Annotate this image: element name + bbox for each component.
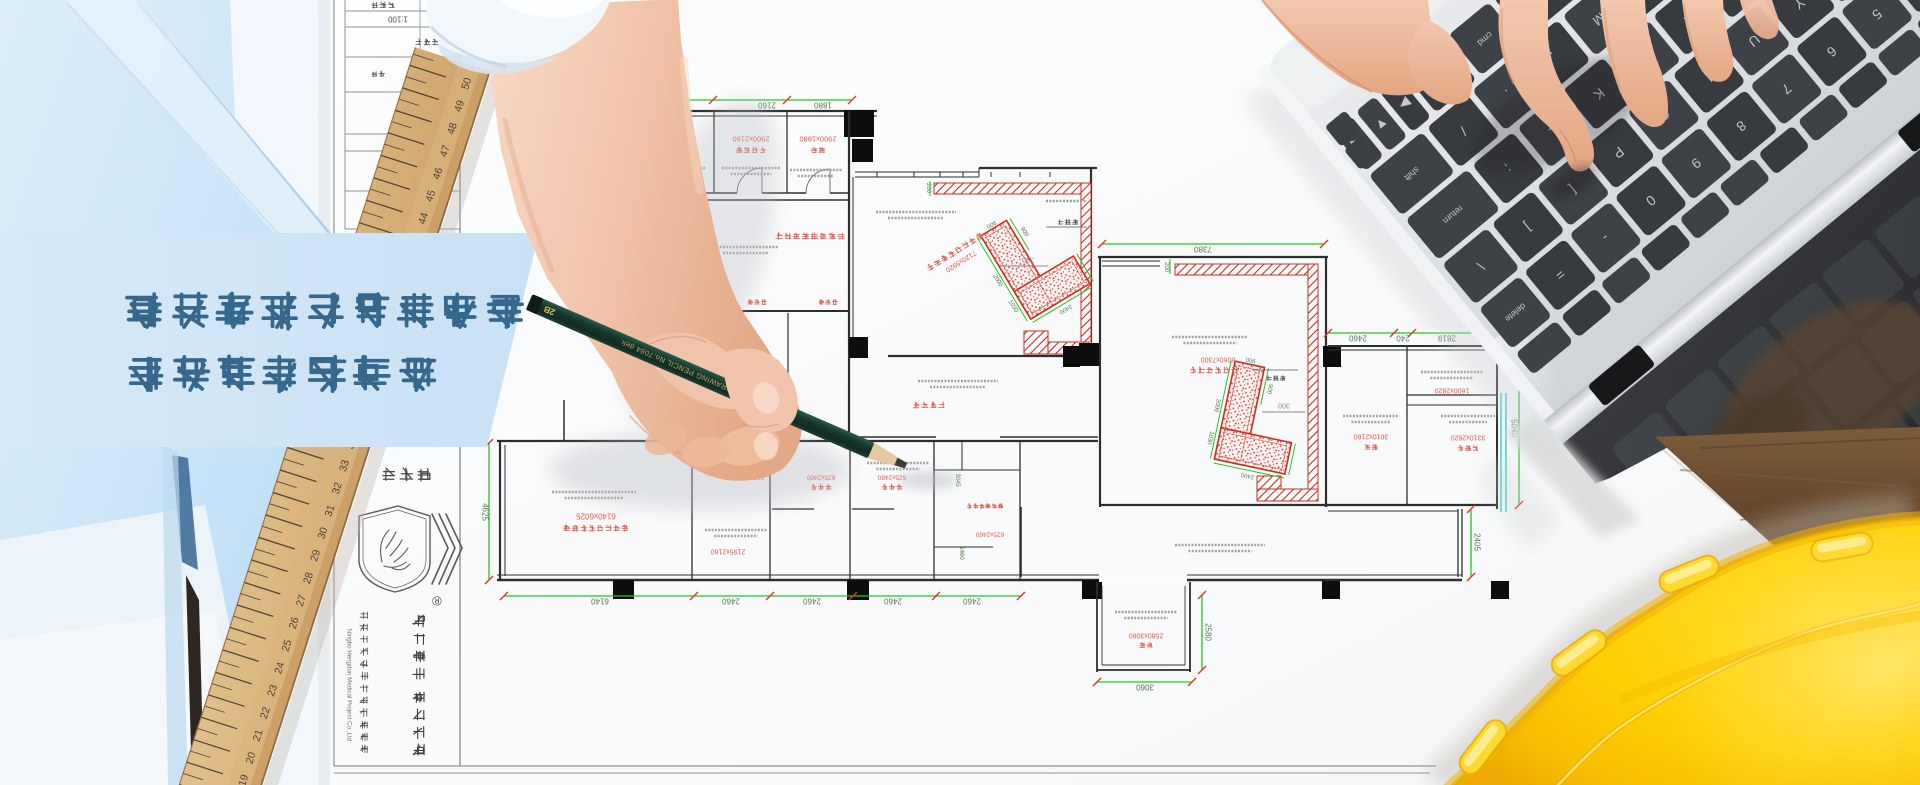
- svg-text:300: 300: [1022, 256, 1034, 263]
- svg-text:1:100: 1:100: [387, 15, 408, 24]
- svg-text:7380: 7380: [1194, 245, 1212, 254]
- svg-text:®: ®: [432, 594, 442, 609]
- svg-text:1460: 1460: [958, 546, 964, 560]
- svg-text:240: 240: [1396, 334, 1410, 343]
- svg-text:200: 200: [1163, 262, 1169, 273]
- svg-text:Ningbo Hengdun Medical Project: Ningbo Hengdun Medical Project Co.,Ltd: [346, 629, 353, 742]
- svg-text:3060: 3060: [1136, 683, 1154, 692]
- svg-text:3310x2620: 3310x2620: [1451, 434, 1486, 441]
- svg-text:2580x3060: 2580x3060: [1129, 632, 1164, 639]
- svg-text:2460: 2460: [884, 597, 902, 606]
- svg-text:6140x6025: 6140x6025: [576, 512, 616, 521]
- svg-text:300: 300: [1278, 402, 1290, 409]
- svg-text:1880: 1880: [814, 101, 832, 110]
- svg-text:2900x1880: 2900x1880: [799, 135, 836, 144]
- svg-text:1600x2820: 1600x2820: [1435, 387, 1470, 394]
- svg-text:4625: 4625: [481, 503, 490, 521]
- svg-text:2580: 2580: [1204, 623, 1213, 641]
- svg-text:2195x2160: 2195x2160: [711, 548, 746, 555]
- svg-text:2405: 2405: [1473, 533, 1482, 551]
- svg-text:2460: 2460: [722, 597, 740, 606]
- svg-text:2460: 2460: [803, 597, 821, 606]
- svg-text:2460: 2460: [1349, 334, 1367, 343]
- svg-text:2460: 2460: [963, 597, 981, 606]
- svg-text:6060x7300: 6060x7300: [1201, 356, 1236, 363]
- svg-text:3010x2160: 3010x2160: [1354, 433, 1389, 440]
- svg-text:625x2460: 625x2460: [975, 531, 1004, 538]
- svg-text:6140: 6140: [591, 597, 609, 606]
